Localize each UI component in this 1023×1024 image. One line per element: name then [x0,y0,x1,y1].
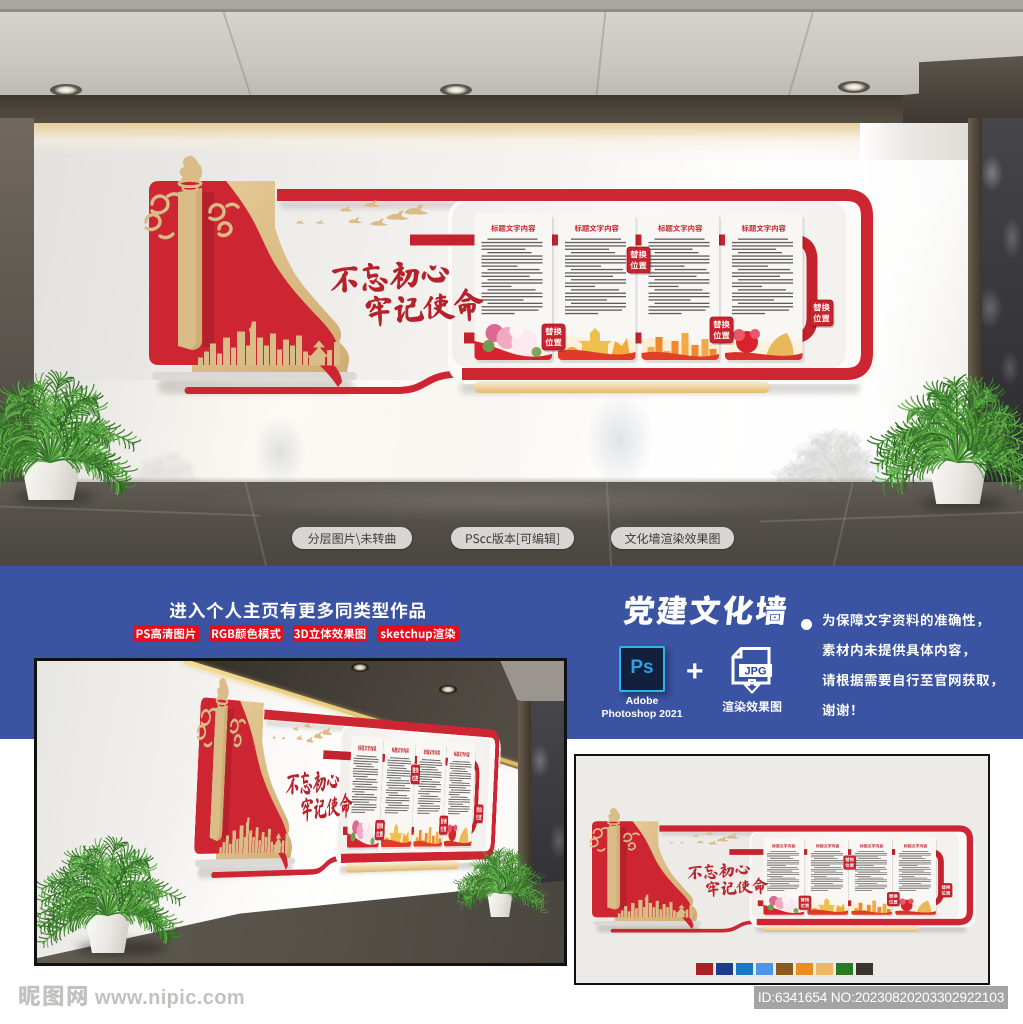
svg-text:www.nipic.com: www.nipic.com [94,987,245,1009]
svg-text:JPG: JPG [744,666,766,678]
